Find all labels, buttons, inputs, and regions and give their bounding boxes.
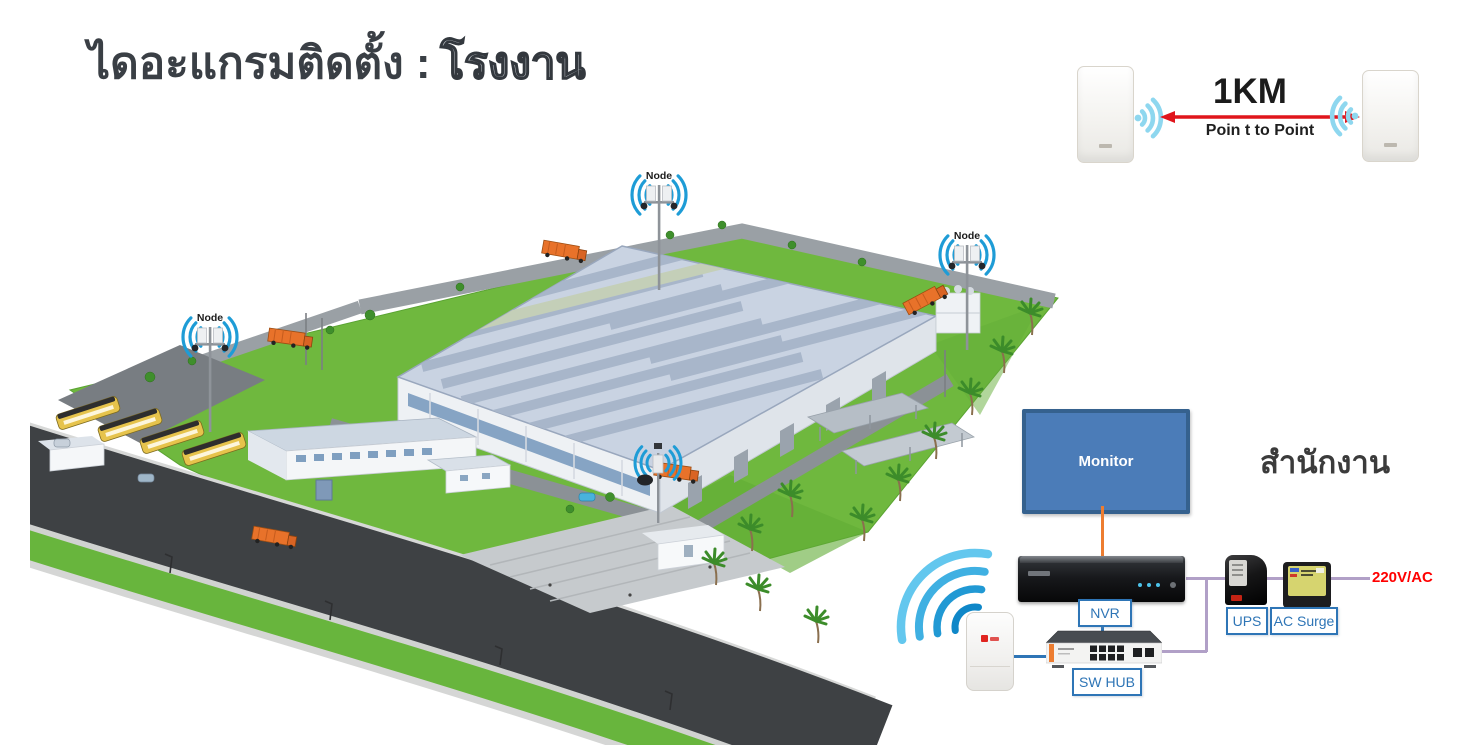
nvr-led	[1147, 583, 1151, 587]
wireless-ap-right	[1362, 70, 1419, 162]
wifi-arcs-left-icon	[1327, 84, 1361, 150]
page-title-main: ไดอะแกรมติดตั้ง :	[88, 39, 430, 88]
nvr-led	[1156, 583, 1160, 587]
node-label: Node	[954, 230, 980, 242]
slide: ไดอะแกรมติดตั้ง :โรงงาน 1KM Poin t to Po…	[0, 0, 1465, 751]
power-source-label: 220V/AC	[1372, 569, 1433, 586]
ac-surge-tag-label: AC Surge	[1274, 613, 1335, 629]
monitor-display: Monitor	[1022, 409, 1190, 514]
nvr-device	[1018, 556, 1185, 602]
sw-hub-tag: SW HUB	[1072, 668, 1142, 696]
connector-acsurge-power	[1328, 577, 1370, 580]
monitor-label: Monitor	[1079, 453, 1134, 470]
page-title-accent: โรงงาน	[440, 39, 585, 88]
ups-tag: UPS	[1226, 607, 1268, 635]
nvr-tag: NVR	[1078, 599, 1132, 627]
ac-surge-tag: AC Surge	[1270, 607, 1338, 635]
ap-seam	[970, 666, 1010, 667]
nvr-led	[1138, 583, 1142, 587]
connector-power-drop	[1205, 579, 1208, 652]
ups-device	[1225, 555, 1267, 605]
nvr-brand-logo	[1028, 571, 1050, 576]
distance-label: 1KM	[1183, 72, 1317, 112]
wireless-ap-left	[1077, 66, 1134, 163]
sw-hub-tag-label: SW HUB	[1079, 674, 1135, 690]
page-title: ไดอะแกรมติดตั้ง :โรงงาน	[88, 28, 586, 98]
nvr-power-button	[1170, 582, 1176, 588]
point-to-point-inset: 1KM Poin t to Point	[1065, 58, 1430, 170]
nvr-top-edge	[1020, 556, 1183, 563]
ac-surge-device	[1283, 562, 1331, 608]
office-wireless-ap	[966, 612, 1014, 691]
ap-brand-logo	[1384, 143, 1397, 147]
connector-ap-switch	[1008, 655, 1048, 658]
ups-tag-label: UPS	[1233, 613, 1262, 629]
connector-monitor-nvr	[1101, 506, 1104, 557]
ap-brand-logo	[981, 635, 999, 642]
node-label: Node	[197, 312, 223, 324]
switch-device	[1046, 629, 1162, 669]
ap-brand-logo	[1099, 144, 1112, 148]
ups-badge	[1231, 595, 1242, 601]
nvr-tag-label: NVR	[1090, 605, 1120, 621]
connector-switch-power	[1162, 650, 1207, 653]
ac-surge-face	[1288, 566, 1326, 596]
node-label: Node	[646, 170, 672, 182]
office-heading: สำนักงาน	[1260, 437, 1390, 487]
ups-face	[1229, 560, 1247, 586]
